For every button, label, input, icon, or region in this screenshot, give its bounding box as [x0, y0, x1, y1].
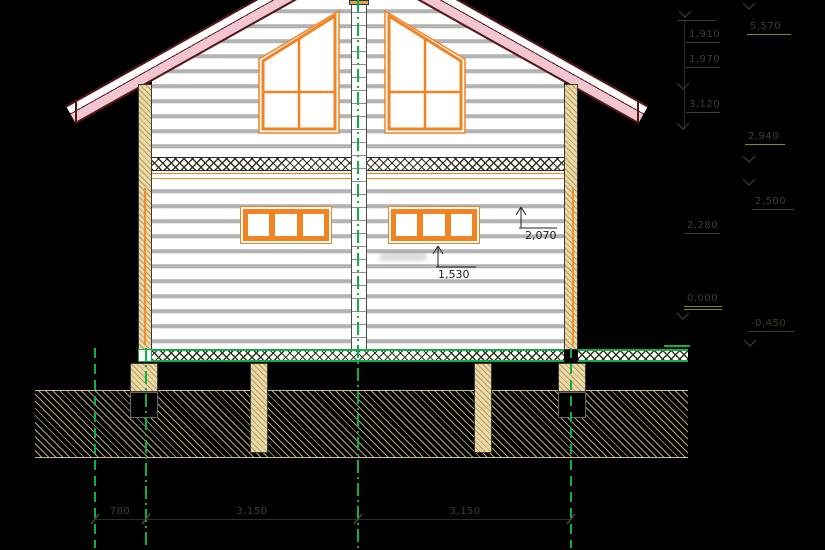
pier-right	[558, 363, 586, 392]
level-shelf	[678, 20, 716, 21]
level-mark-icon	[743, 339, 757, 347]
level-mark-icon	[676, 312, 690, 320]
window-pane	[302, 213, 325, 237]
buried-pier-left	[130, 392, 158, 418]
dim-underline	[686, 112, 720, 113]
window-pane	[422, 213, 445, 237]
eaves-level-underline	[745, 144, 785, 145]
level-mark-icon	[742, 178, 756, 186]
right-extension-line	[684, 20, 685, 130]
zero-level-underline	[684, 306, 722, 307]
zero-level-underline-2	[684, 309, 722, 310]
bottom-dim-780: 780	[98, 506, 142, 517]
eaves-level-value: 2,940	[748, 131, 779, 142]
mid-level-value: 2,500	[755, 196, 786, 207]
level-mark-icon	[742, 155, 756, 163]
pier-left	[130, 363, 158, 392]
axis-line-center	[357, 0, 359, 548]
gable-window-right	[384, 8, 466, 134]
ridge-level-underline	[747, 34, 791, 35]
level-mark-icon	[742, 2, 756, 10]
facade-drawing-canvas: 780 3,150 3,150 2,070 1,530 1,910 1,970 …	[0, 0, 825, 550]
leader-window-sill-value: 1,530	[438, 268, 470, 281]
leader-window-head-value: 2,070	[525, 229, 557, 242]
mid-level-shelf	[752, 209, 794, 210]
ground-level-shelf	[748, 331, 794, 332]
ground-level-line-right	[664, 345, 690, 347]
wall-smudge	[380, 252, 426, 261]
dim-roof-upper: 1,910	[689, 29, 720, 40]
buried-pier-right	[558, 392, 586, 418]
dim-wall: 3,120	[689, 99, 720, 110]
dim-underline	[686, 67, 720, 68]
gable-window-left	[258, 8, 340, 134]
eave-cap-left	[75, 102, 77, 123]
dim-floor: 2,280	[687, 220, 718, 231]
post-mid-right	[474, 363, 492, 453]
window-pane	[395, 213, 418, 237]
dim-underline	[686, 42, 720, 43]
post-mid-left	[250, 363, 268, 453]
eave-cap-right	[637, 102, 639, 123]
downpipe-left	[144, 188, 146, 345]
dimension-ticks	[85, 510, 585, 530]
bottom-dim-3150-left: 3,150	[228, 506, 276, 517]
first-floor-window-left	[240, 206, 332, 244]
ground-level-value: -0,450	[751, 318, 786, 329]
window-pane	[274, 213, 297, 237]
corner-post-right	[564, 84, 578, 350]
window-pane	[450, 213, 473, 237]
center-log-column	[351, 0, 367, 349]
first-floor-window-right	[388, 206, 480, 244]
level-mark-icon	[676, 82, 690, 90]
center-column-cap	[349, 0, 369, 5]
downpipe-right	[572, 188, 574, 345]
window-pane	[247, 213, 270, 237]
floor-insulation-band-right	[578, 349, 688, 362]
bottom-dim-3150-right: 3,150	[441, 506, 489, 517]
level-mark-icon	[676, 122, 690, 130]
zero-level-value: 0,000	[687, 293, 718, 304]
dim-underline	[684, 233, 720, 234]
ridge-level-value: 5,570	[750, 21, 781, 32]
level-mark-icon	[678, 10, 692, 18]
dim-roof-lower: 1,970	[689, 54, 720, 65]
